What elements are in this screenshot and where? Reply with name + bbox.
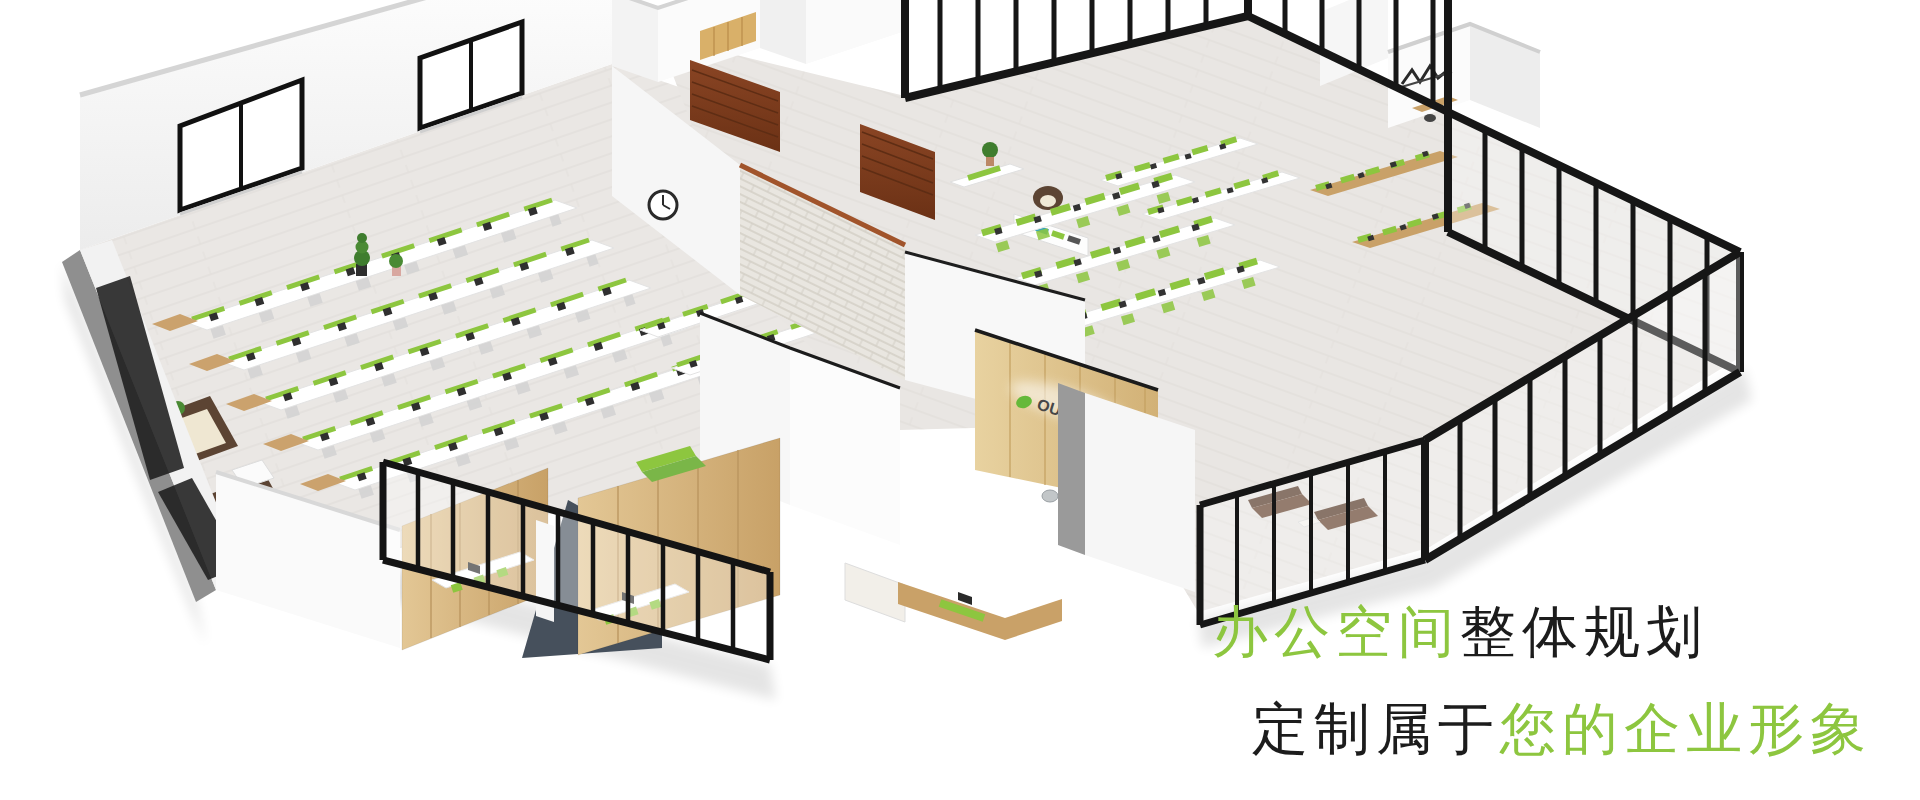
wall-clock (649, 191, 677, 219)
caption-line-1: 办公空间整体规划 (1212, 604, 1708, 660)
caption-2-black: 定制属于 (1252, 698, 1500, 760)
caption-2-green: 您的企业形象 (1500, 698, 1872, 760)
office-chair (1042, 490, 1058, 502)
office-floorplan-illustration: OUJIN 欧进 (0, 0, 1920, 800)
executive-desk (845, 563, 1062, 640)
caption-line-2: 定制属于您的企业形象 (1252, 701, 1872, 757)
caption-1-green: 办公空间 (1212, 601, 1460, 663)
page: OUJIN 欧进 (0, 0, 1920, 800)
caption-1-black: 整体规划 (1460, 601, 1708, 663)
